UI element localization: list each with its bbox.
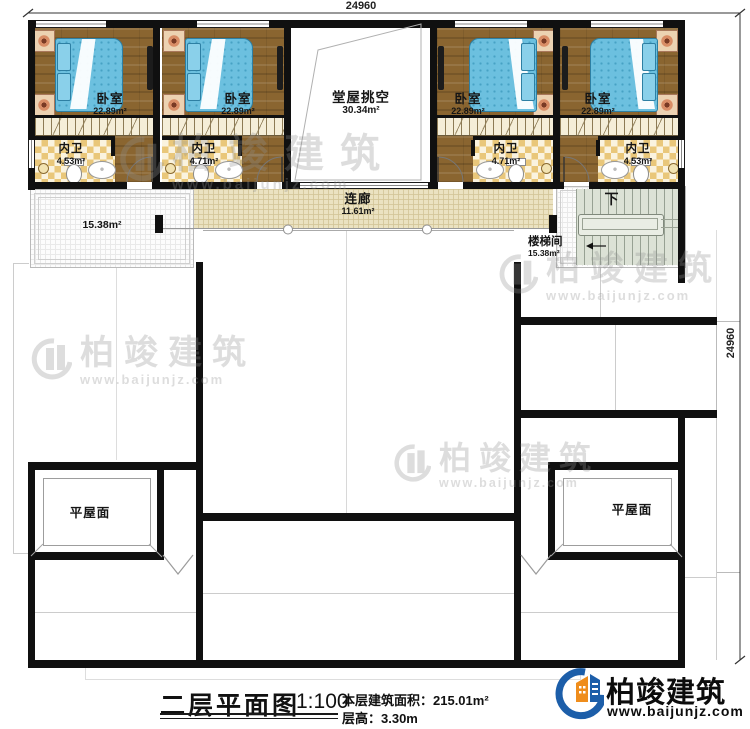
- down-text: 下: [598, 192, 626, 208]
- wall-bath-2: [162, 136, 242, 140]
- room-label-bath-4: 内卫 4.53m²: [602, 143, 674, 166]
- wall-roof-right-bottom: [548, 552, 685, 560]
- dim-tick: [735, 656, 745, 664]
- bedroom-3-closet: [437, 118, 553, 136]
- room-area: 15.38m²: [528, 249, 598, 259]
- nightstand: [163, 30, 185, 52]
- room-name: 内卫: [168, 143, 240, 156]
- wall-left-lower: [28, 462, 35, 668]
- room-name: 卧室: [188, 92, 288, 106]
- bedroom-3-floor-strip: [437, 136, 473, 182]
- nightstand: [33, 30, 55, 52]
- wall-corridor-stub-left: [155, 215, 163, 233]
- bath-fixture: [541, 163, 552, 174]
- watermark: 柏竣建筑 www.baijunjz.com: [28, 336, 256, 386]
- toilet-bowl: [193, 164, 209, 184]
- nightstand: [163, 94, 185, 116]
- headboard-cushion: [521, 73, 535, 101]
- courtyard-top-line: [203, 230, 514, 231]
- roof-slope-arrow-right: [521, 555, 551, 574]
- watermark-text: 柏竣建筑 www.baijunjz.com: [80, 336, 256, 386]
- brand-logo-icon: [552, 666, 604, 724]
- room-name: 平屋面: [50, 506, 130, 520]
- window: [591, 20, 663, 28]
- title-underline: [160, 718, 338, 719]
- window: [197, 20, 269, 28]
- tv-panel: [438, 46, 444, 90]
- floor-plan-canvas: 24960 24960 卧室 22.89m² 卧室 22.89m² 卧室 22.…: [0, 0, 750, 729]
- dim-label-top: 24960: [338, 0, 384, 12]
- left-faint-line: [13, 263, 29, 264]
- wall-corridor-stub-right: [549, 215, 557, 233]
- watermark-url: www.baijunjz.com: [546, 289, 722, 302]
- wall-roof-right-divider: [548, 462, 555, 560]
- left-faint-line: [116, 268, 117, 460]
- corridor-edge-line: [163, 228, 553, 229]
- wall-band-bottom: [28, 182, 127, 189]
- dim-extension-line: [717, 572, 740, 573]
- room-area: 22.89m²: [548, 106, 648, 116]
- room-name: 内卫: [470, 143, 542, 156]
- dim-label-right: 24960: [725, 318, 737, 368]
- room-name: 卧室: [418, 92, 518, 106]
- bedroom-4-floor-strip: [560, 136, 598, 182]
- room-label-flat-roof-left: 平屋面: [50, 506, 130, 520]
- wall-top: [28, 20, 685, 28]
- wall-bath-3: [473, 136, 553, 140]
- room-name: 内卫: [602, 143, 674, 156]
- wall-band-bottom: [463, 182, 564, 189]
- wall-bath-1-side: [111, 140, 115, 156]
- headboard-cushion: [187, 43, 201, 71]
- room-area: 30.34m²: [311, 105, 411, 116]
- floor-height-text: 层高：3.30m: [342, 708, 418, 727]
- room-label-bedroom-2: 卧室 22.89m²: [188, 92, 288, 116]
- wall-bath-4: [598, 136, 678, 140]
- room-label-corridor: 连廊 11.61m²: [308, 192, 408, 216]
- wall-bath-1: [35, 136, 115, 140]
- room-label-stairwell: 楼梯间 15.38m²: [528, 236, 598, 258]
- headboard-cushion: [521, 43, 535, 71]
- watermark-logo-icon: [391, 442, 431, 486]
- room-divider-line: [615, 325, 616, 410]
- wall-roof-left-top: [28, 462, 196, 470]
- wall-bottom-middle-top: [196, 513, 521, 521]
- room-label-bath-1: 内卫 4.53m²: [35, 143, 107, 166]
- courtyard-center-line: [346, 231, 347, 513]
- room-name: 平屋面: [592, 503, 672, 517]
- room-area: 4.53m²: [35, 156, 107, 166]
- wall-bath-4-side: [596, 140, 600, 156]
- nightstand: [656, 30, 678, 52]
- room-area: 4.53m²: [602, 156, 674, 166]
- dim-tick: [735, 9, 745, 17]
- headboard-cushion: [57, 43, 71, 71]
- room-label-hall: 堂屋挑空 30.34m²: [311, 90, 411, 116]
- right-faint-line: [685, 577, 716, 578]
- left-faint-line: [13, 553, 29, 554]
- bedroom-4-closet: [560, 118, 678, 136]
- window-left-wall: [28, 140, 35, 168]
- wall-roof-left-bottom: [28, 552, 164, 560]
- room-label-flat-roof-right: 平屋面: [592, 503, 672, 517]
- toilet-bowl: [66, 164, 82, 184]
- title-underline: [160, 713, 338, 715]
- wall-right-lower: [678, 418, 685, 668]
- wall-courtyard-left: [196, 262, 203, 668]
- roof-slope-arrow-left: [163, 555, 193, 574]
- room-area: 22.89m²: [188, 106, 288, 116]
- floor-area-text: 本层建筑面积：215.01m²: [342, 690, 489, 709]
- headboard-cushion: [642, 43, 656, 71]
- window: [455, 20, 527, 28]
- wall-right-wing-upper: [514, 317, 717, 325]
- bedroom-2-closet: [162, 118, 284, 136]
- room-name: 内卫: [35, 143, 107, 156]
- room-name: 堂屋挑空: [311, 90, 411, 105]
- brand-url: www.baijunjz.com: [607, 703, 744, 719]
- stair-landing-rail-inner: [582, 218, 658, 230]
- bedroom-2-floor-strip: [242, 136, 284, 182]
- wall-band-bottom: [589, 182, 685, 189]
- tv-panel: [562, 46, 568, 90]
- room-area: 15.38m²: [62, 220, 142, 232]
- dim-tick: [23, 9, 33, 17]
- tv-panel: [277, 46, 283, 90]
- window-right-wall: [678, 140, 685, 168]
- room-divider-line: [600, 268, 601, 317]
- room-area: 22.89m²: [60, 106, 160, 116]
- room-label-terrace: 15.38m²: [62, 220, 142, 232]
- bedroom-1-floor-strip: [115, 136, 153, 182]
- room-label-bedroom-4: 卧室 22.89m²: [548, 92, 648, 116]
- bottom-faint-line: [85, 679, 580, 680]
- stair-down-label: 下: [598, 192, 626, 208]
- room-area: 22.89m²: [418, 106, 518, 116]
- nightstand: [656, 94, 678, 116]
- plan-title: 二层平面图: [160, 686, 300, 722]
- right-faint-line: [716, 418, 717, 660]
- watermark-url: www.baijunjz.com: [80, 373, 256, 386]
- toilet-bowl: [508, 164, 524, 184]
- room-name: 卧室: [60, 92, 160, 106]
- bedroom-1-closet: [35, 118, 153, 136]
- nightstand: [33, 94, 55, 116]
- wall-roof-right-top: [548, 462, 685, 470]
- room-label-bedroom-1: 卧室 22.89m²: [60, 92, 160, 116]
- plan-scale: 1:100: [296, 690, 349, 714]
- room-label-bedroom-3: 卧室 22.89m²: [418, 92, 518, 116]
- room-name: 卧室: [548, 92, 648, 106]
- bottom-faint-line: [85, 668, 86, 680]
- room-area: 4.71m²: [470, 156, 542, 166]
- right-edge-line: [716, 325, 717, 410]
- watermark-name: 柏竣建筑: [80, 336, 256, 370]
- wall-roof-left-divider: [157, 462, 164, 560]
- room-line: [35, 612, 196, 613]
- room-label-bath-3: 内卫 4.71m²: [470, 143, 542, 166]
- wall-band-bottom: [152, 182, 257, 189]
- room-label-bath-2: 内卫 4.71m²: [168, 143, 240, 166]
- watermark-logo-icon: [28, 336, 72, 384]
- room-name: 连廊: [308, 192, 408, 206]
- wall-right-wing-lower: [514, 410, 717, 418]
- right-faint-line: [716, 230, 717, 317]
- room-area: 11.61m²: [308, 206, 408, 216]
- toilet-bowl: [633, 164, 649, 184]
- room-area: 4.71m²: [168, 156, 240, 166]
- room-line: [521, 612, 678, 613]
- window: [36, 20, 106, 28]
- room-name: 楼梯间: [528, 236, 598, 249]
- room-line: [203, 593, 514, 594]
- window-hall-bottom: [300, 182, 428, 189]
- left-faint-line: [13, 263, 14, 553]
